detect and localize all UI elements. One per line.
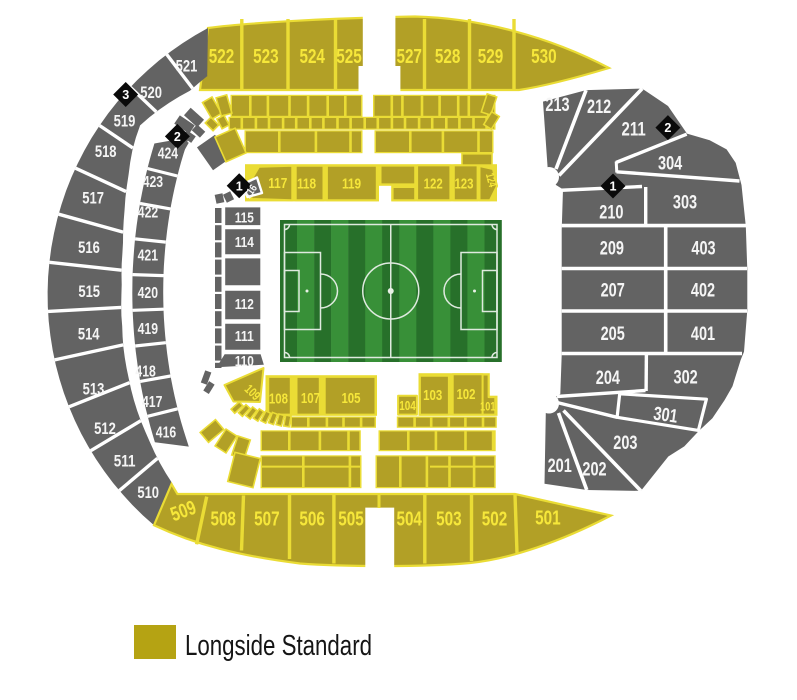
svg-text:518: 518	[95, 142, 117, 161]
svg-text:213: 213	[545, 95, 569, 116]
svg-text:202: 202	[582, 459, 606, 480]
svg-text:517: 517	[82, 188, 104, 207]
svg-text:201: 201	[548, 456, 573, 477]
svg-text:122: 122	[424, 176, 443, 193]
svg-text:402: 402	[691, 280, 715, 301]
svg-text:515: 515	[78, 282, 100, 301]
svg-text:103: 103	[423, 387, 442, 404]
svg-text:504: 504	[396, 509, 422, 531]
svg-text:104: 104	[399, 398, 416, 413]
svg-text:1: 1	[610, 179, 617, 194]
svg-text:418: 418	[135, 363, 155, 380]
svg-text:203: 203	[613, 433, 637, 454]
svg-text:112: 112	[235, 296, 254, 313]
svg-text:108: 108	[269, 391, 288, 408]
svg-text:401: 401	[691, 324, 716, 345]
svg-text:403: 403	[691, 239, 715, 260]
svg-text:2: 2	[174, 129, 181, 144]
svg-text:502: 502	[482, 509, 508, 531]
svg-text:419: 419	[138, 321, 158, 338]
svg-text:523: 523	[253, 46, 279, 68]
svg-text:304: 304	[658, 154, 683, 175]
svg-text:101: 101	[480, 399, 496, 413]
svg-text:114: 114	[235, 234, 255, 251]
svg-text:3: 3	[122, 87, 129, 102]
svg-text:528: 528	[435, 46, 461, 68]
svg-text:102: 102	[456, 386, 475, 403]
svg-text:115: 115	[235, 210, 254, 227]
svg-text:105: 105	[341, 390, 360, 407]
svg-text:503: 503	[436, 509, 462, 531]
svg-text:Longside Standard: Longside Standard	[185, 630, 372, 662]
svg-text:508: 508	[210, 509, 236, 531]
svg-text:211: 211	[622, 119, 647, 140]
svg-text:501: 501	[535, 508, 561, 530]
svg-text:529: 529	[478, 46, 504, 68]
svg-text:210: 210	[599, 203, 623, 224]
svg-text:421: 421	[138, 247, 158, 264]
svg-text:423: 423	[143, 174, 163, 191]
svg-text:417: 417	[142, 394, 162, 411]
svg-text:530: 530	[531, 46, 557, 68]
svg-text:527: 527	[396, 46, 422, 68]
svg-text:519: 519	[114, 112, 136, 131]
svg-text:209: 209	[600, 239, 624, 260]
svg-text:505: 505	[338, 509, 364, 531]
svg-text:205: 205	[601, 324, 626, 345]
svg-text:511: 511	[114, 452, 136, 471]
svg-text:1: 1	[236, 178, 243, 193]
svg-text:424: 424	[158, 145, 178, 162]
svg-text:123: 123	[454, 176, 473, 193]
svg-text:2: 2	[664, 120, 671, 135]
svg-text:302: 302	[674, 368, 698, 389]
svg-text:512: 512	[94, 419, 116, 438]
svg-text:212: 212	[587, 97, 611, 118]
svg-text:107: 107	[301, 390, 320, 407]
svg-text:117: 117	[268, 175, 287, 192]
svg-text:513: 513	[83, 379, 105, 398]
svg-text:525: 525	[336, 46, 362, 68]
svg-text:111: 111	[235, 328, 254, 345]
svg-text:420: 420	[138, 285, 158, 302]
svg-text:516: 516	[78, 238, 100, 257]
svg-text:207: 207	[601, 280, 625, 301]
svg-text:510: 510	[137, 483, 159, 502]
svg-text:507: 507	[254, 509, 280, 531]
svg-text:118: 118	[297, 176, 316, 193]
svg-text:303: 303	[673, 193, 697, 214]
svg-text:506: 506	[299, 509, 325, 531]
svg-text:514: 514	[78, 324, 100, 343]
svg-text:422: 422	[138, 205, 158, 222]
svg-text:301: 301	[652, 404, 679, 428]
svg-text:520: 520	[140, 83, 162, 102]
svg-text:524: 524	[299, 46, 325, 68]
svg-text:110: 110	[235, 353, 254, 370]
svg-text:522: 522	[209, 46, 235, 68]
svg-text:204: 204	[596, 368, 621, 389]
svg-text:521: 521	[176, 57, 198, 76]
svg-text:416: 416	[156, 425, 176, 442]
svg-text:119: 119	[342, 176, 361, 193]
